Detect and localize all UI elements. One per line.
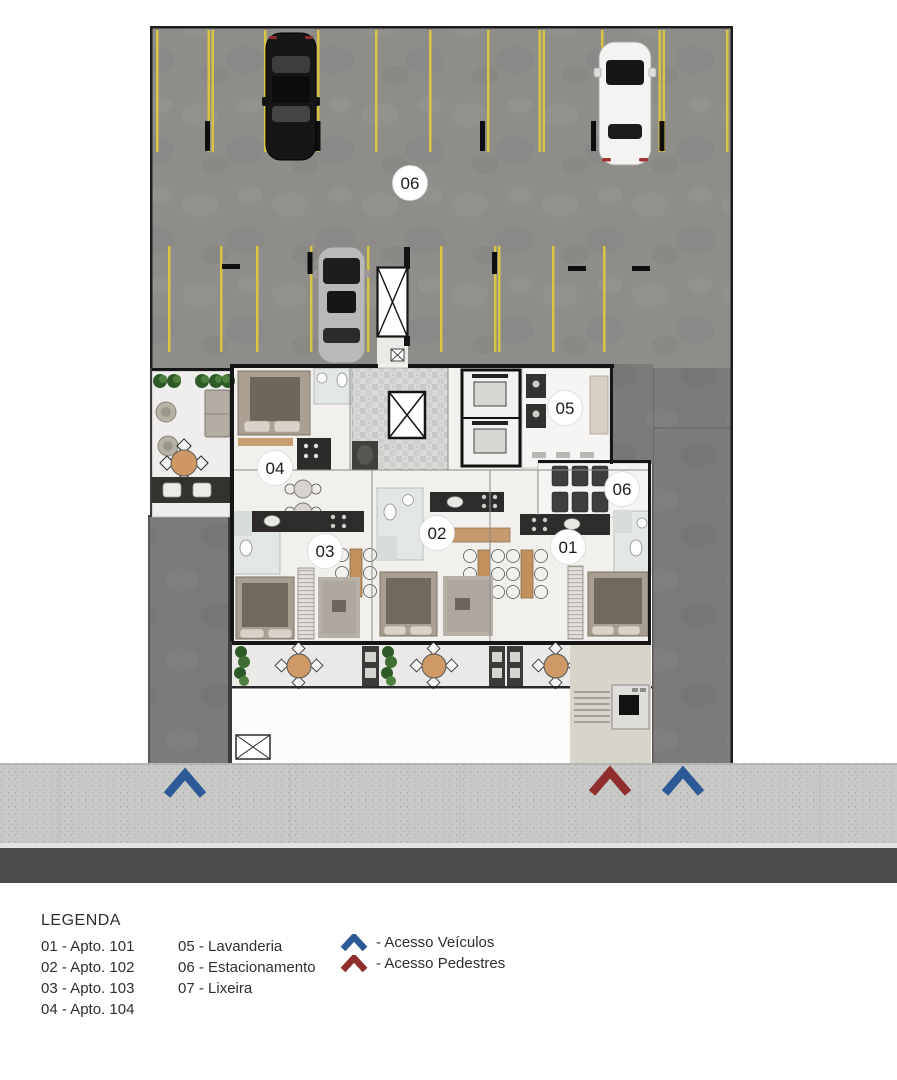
counter bbox=[238, 438, 293, 446]
svg-text:04: 04 bbox=[266, 459, 285, 478]
white-car bbox=[594, 42, 656, 165]
svg-text:06: 06 bbox=[401, 174, 420, 193]
unit-marker-02: 02 bbox=[420, 516, 455, 551]
svg-text:02: 02 bbox=[428, 524, 447, 543]
svg-text:06: 06 bbox=[613, 480, 632, 499]
unit-marker-01: 01 bbox=[551, 530, 586, 565]
unit-marker-06-storage: 06 bbox=[605, 472, 640, 507]
trash-enclosure bbox=[612, 685, 649, 729]
unit-marker-03: 03 bbox=[308, 534, 343, 569]
road bbox=[0, 848, 897, 883]
floor-plan-page: 06 04 05 06 03 02 01 LEGENDA 01 - Apto. … bbox=[0, 0, 897, 1080]
svg-text:03: 03 bbox=[316, 542, 335, 561]
street bbox=[0, 763, 897, 883]
wardrobe bbox=[298, 568, 314, 639]
island-counter bbox=[448, 528, 510, 542]
unit-marker-04: 04 bbox=[258, 451, 293, 486]
curb bbox=[0, 843, 897, 848]
svg-text:01: 01 bbox=[559, 538, 578, 557]
right-driveway bbox=[652, 364, 731, 763]
crossed-box bbox=[236, 735, 270, 759]
kitchen-counter bbox=[297, 438, 331, 470]
wardrobe bbox=[568, 566, 583, 639]
svg-text:05: 05 bbox=[556, 399, 575, 418]
unit-marker-06-parking: 06 bbox=[393, 166, 428, 201]
floor-plan-canvas: 06 04 05 06 03 02 01 bbox=[0, 0, 897, 1080]
silver-car bbox=[313, 247, 370, 363]
black-car bbox=[262, 33, 320, 160]
elevators bbox=[462, 370, 520, 466]
kitchen-counter bbox=[430, 492, 504, 512]
dining-set bbox=[507, 550, 548, 599]
common-patio bbox=[150, 368, 235, 517]
unit-marker-05: 05 bbox=[548, 391, 583, 426]
left-driveway bbox=[148, 515, 230, 763]
lobby-core bbox=[352, 368, 448, 470]
